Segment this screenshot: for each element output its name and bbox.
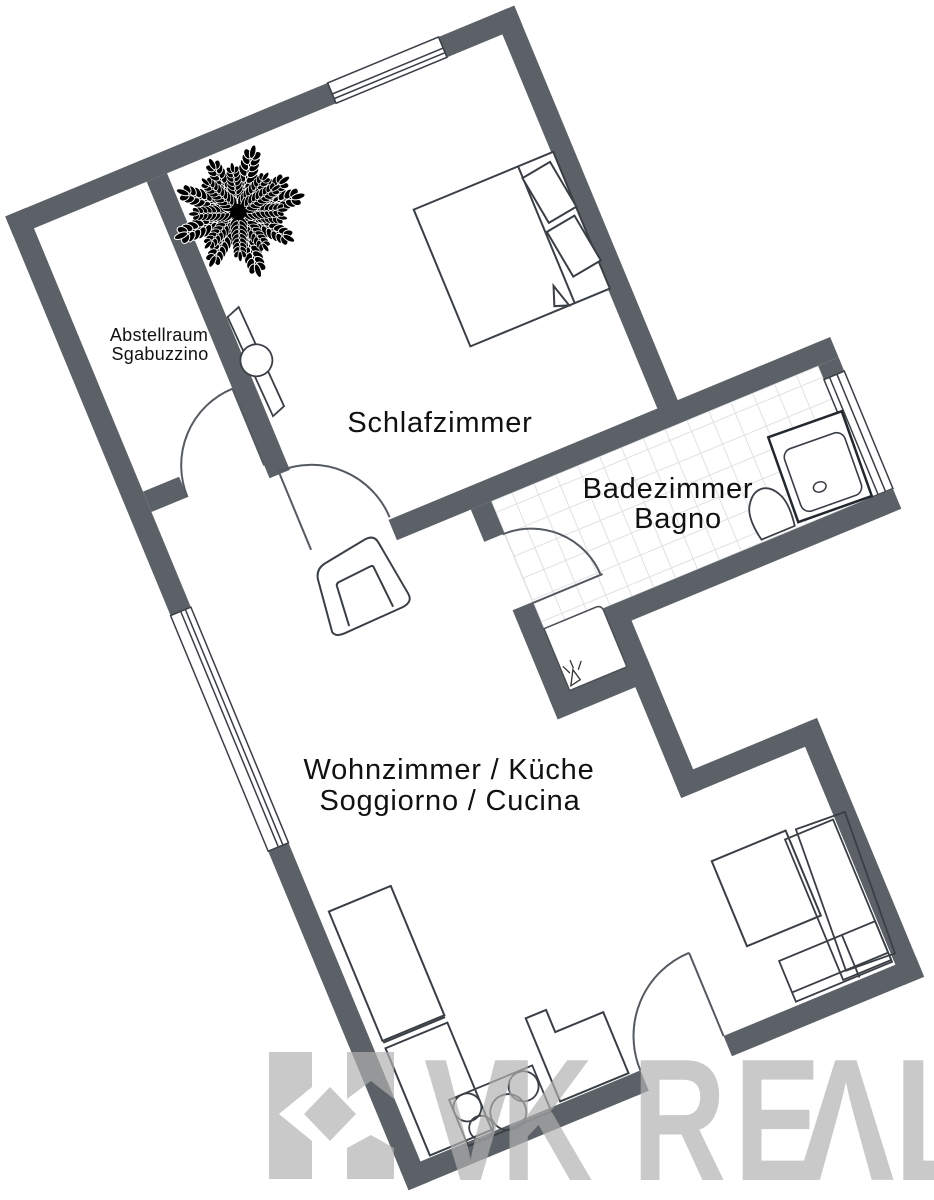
svg-text:Schlafzimmer: Schlafzimmer xyxy=(347,407,532,439)
svg-text:R: R xyxy=(632,1023,726,1200)
svg-text:Badezimmer: Badezimmer xyxy=(583,473,754,505)
svg-text:Sgabuzzino: Sgabuzzino xyxy=(111,344,208,364)
svg-text:Wohnzimmer / Küche: Wohnzimmer / Küche xyxy=(303,754,594,786)
svg-text:Soggiorno / Cucina: Soggiorno / Cucina xyxy=(319,785,580,817)
svg-text:Abstellraum: Abstellraum xyxy=(110,325,208,345)
svg-text:L: L xyxy=(894,1023,934,1200)
svg-text:Λ: Λ xyxy=(797,1024,894,1200)
svg-text:Bagno: Bagno xyxy=(634,503,722,535)
svg-text:K: K xyxy=(501,1024,593,1200)
